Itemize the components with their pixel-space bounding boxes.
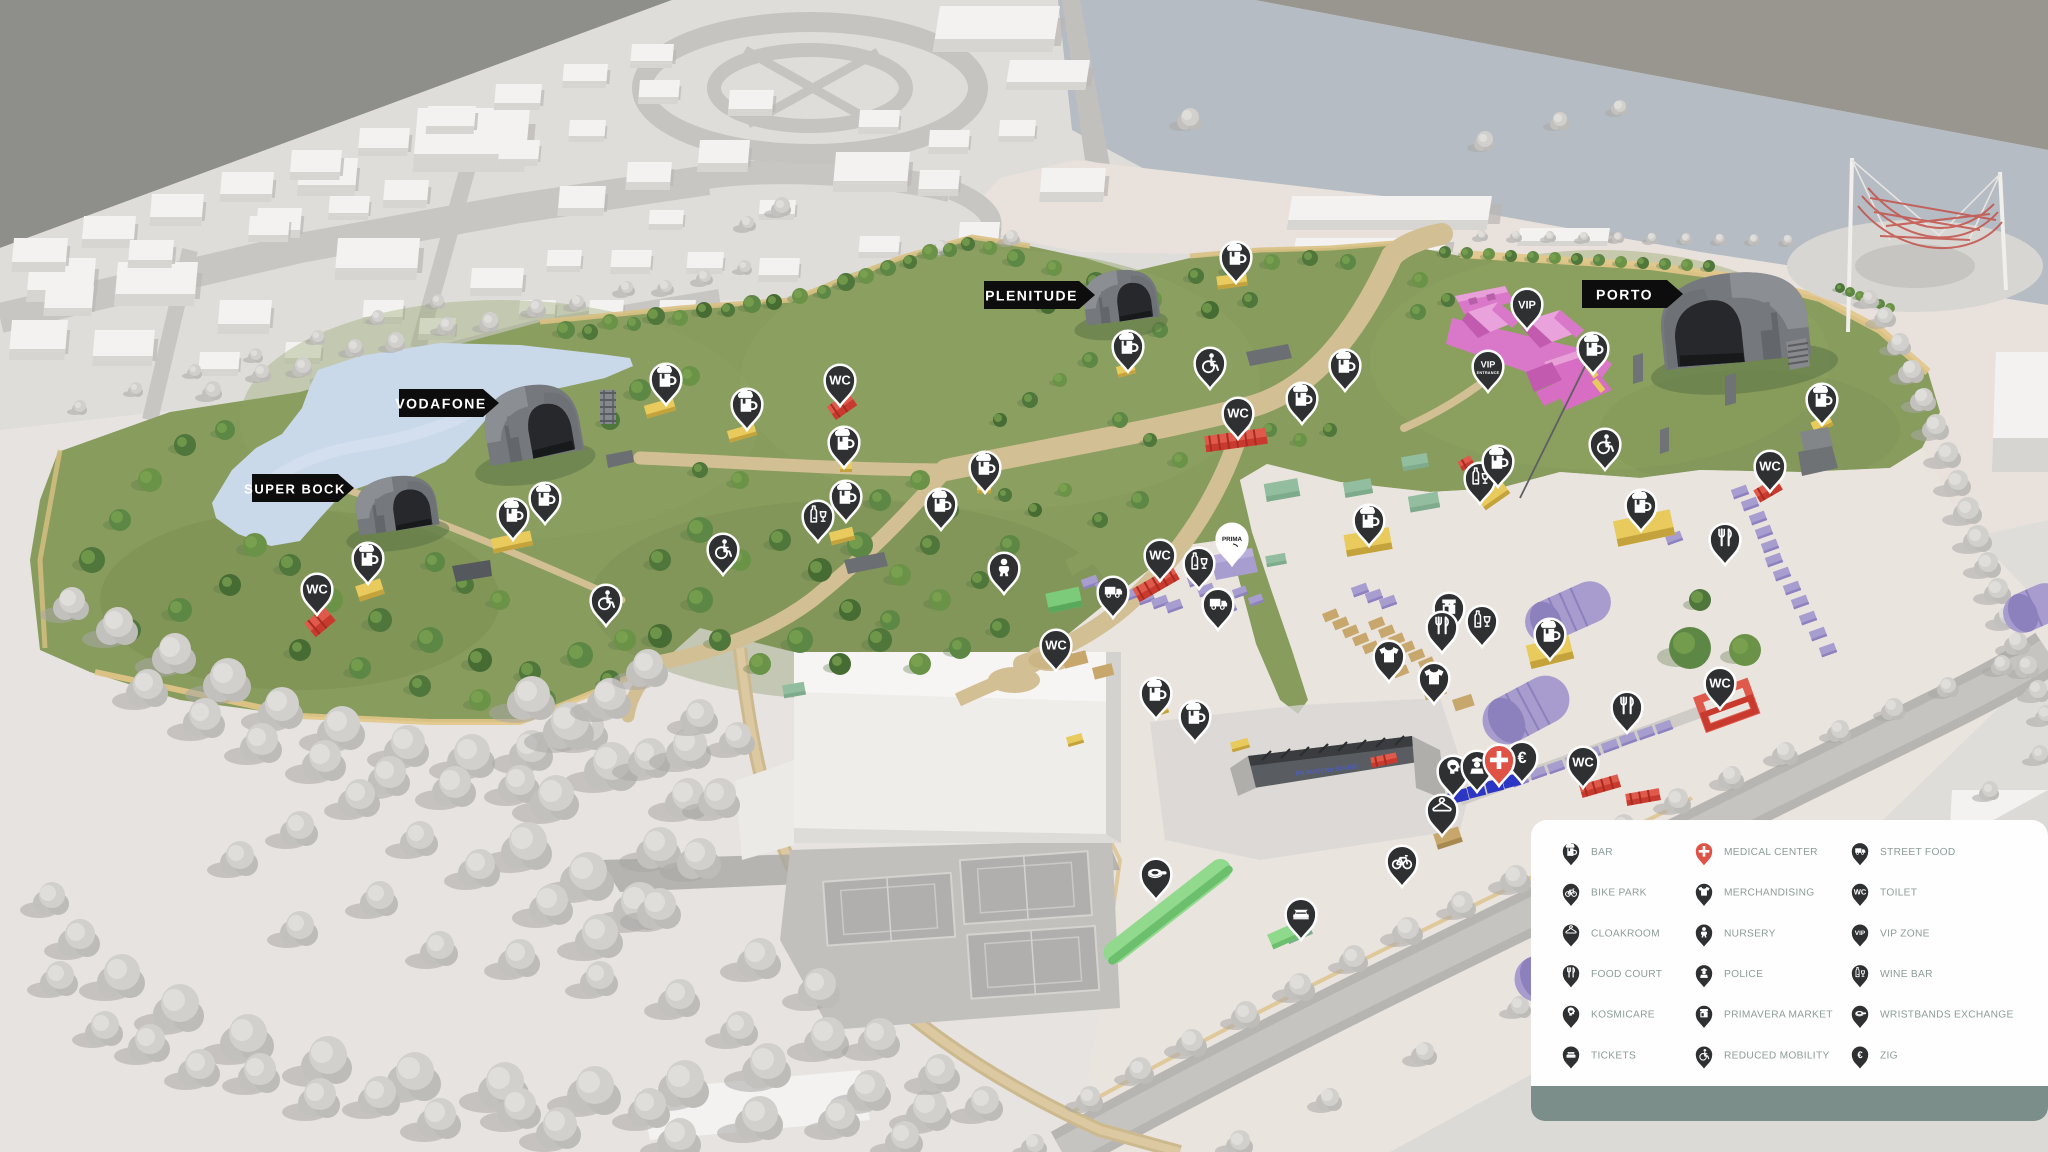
svg-text:VIP: VIP [1518, 300, 1536, 312]
svg-text:WRISTBANDS EXCHANGE: WRISTBANDS EXCHANGE [1880, 1010, 2014, 1021]
svg-text:REDUCED MOBILITY: REDUCED MOBILITY [1724, 1050, 1830, 1061]
svg-text:PRIMAVERA MARKET: PRIMAVERA MARKET [1724, 1010, 1833, 1021]
svg-text:POLICE: POLICE [1724, 969, 1763, 980]
svg-text:NURSERY: NURSERY [1724, 928, 1776, 939]
svg-text:TOILET: TOILET [1880, 888, 1917, 899]
svg-text:MERCHANDISING: MERCHANDISING [1724, 888, 1815, 899]
svg-text:VIP ZONE: VIP ZONE [1880, 928, 1930, 939]
svg-text:€: € [1517, 748, 1527, 766]
svg-text:PLENITUDE: PLENITUDE [985, 288, 1078, 304]
svg-text:STREET FOOD: STREET FOOD [1880, 847, 1956, 858]
svg-text:WC: WC [1045, 638, 1067, 652]
svg-text:€: € [1857, 1050, 1863, 1061]
svg-text:WC: WC [306, 582, 328, 596]
svg-text:CLOAKROOM: CLOAKROOM [1591, 928, 1660, 939]
svg-text:BAR: BAR [1591, 847, 1613, 858]
svg-text:WINE BAR: WINE BAR [1880, 969, 1933, 980]
svg-text:WC: WC [1149, 548, 1171, 562]
svg-text:WC: WC [829, 373, 851, 387]
svg-text:VODAFONE: VODAFONE [395, 396, 486, 412]
svg-text:VIP: VIP [1855, 930, 1866, 937]
svg-text:SUPER BOCK: SUPER BOCK [244, 482, 346, 497]
svg-text:FOOD COURT: FOOD COURT [1591, 969, 1662, 980]
svg-text:WC: WC [1854, 888, 1867, 896]
svg-text:WC: WC [1227, 406, 1249, 420]
svg-text:TICKETS: TICKETS [1591, 1050, 1636, 1061]
svg-text:PORTO: PORTO [1596, 287, 1653, 303]
svg-text:MEDICAL CENTER: MEDICAL CENTER [1724, 847, 1818, 858]
svg-text:ENTRANCE: ENTRANCE [1477, 370, 1500, 375]
svg-text:WC: WC [1709, 676, 1731, 690]
svg-text:WC: WC [1572, 755, 1594, 769]
svg-text:PRIMA: PRIMA [1222, 536, 1242, 543]
svg-text:WC: WC [1759, 459, 1781, 473]
svg-text:BIKE PARK: BIKE PARK [1591, 888, 1647, 899]
svg-text:VIP: VIP [1481, 360, 1496, 371]
svg-text:ZIG: ZIG [1880, 1050, 1898, 1061]
svg-text:KOSMICARE: KOSMICARE [1591, 1010, 1655, 1021]
